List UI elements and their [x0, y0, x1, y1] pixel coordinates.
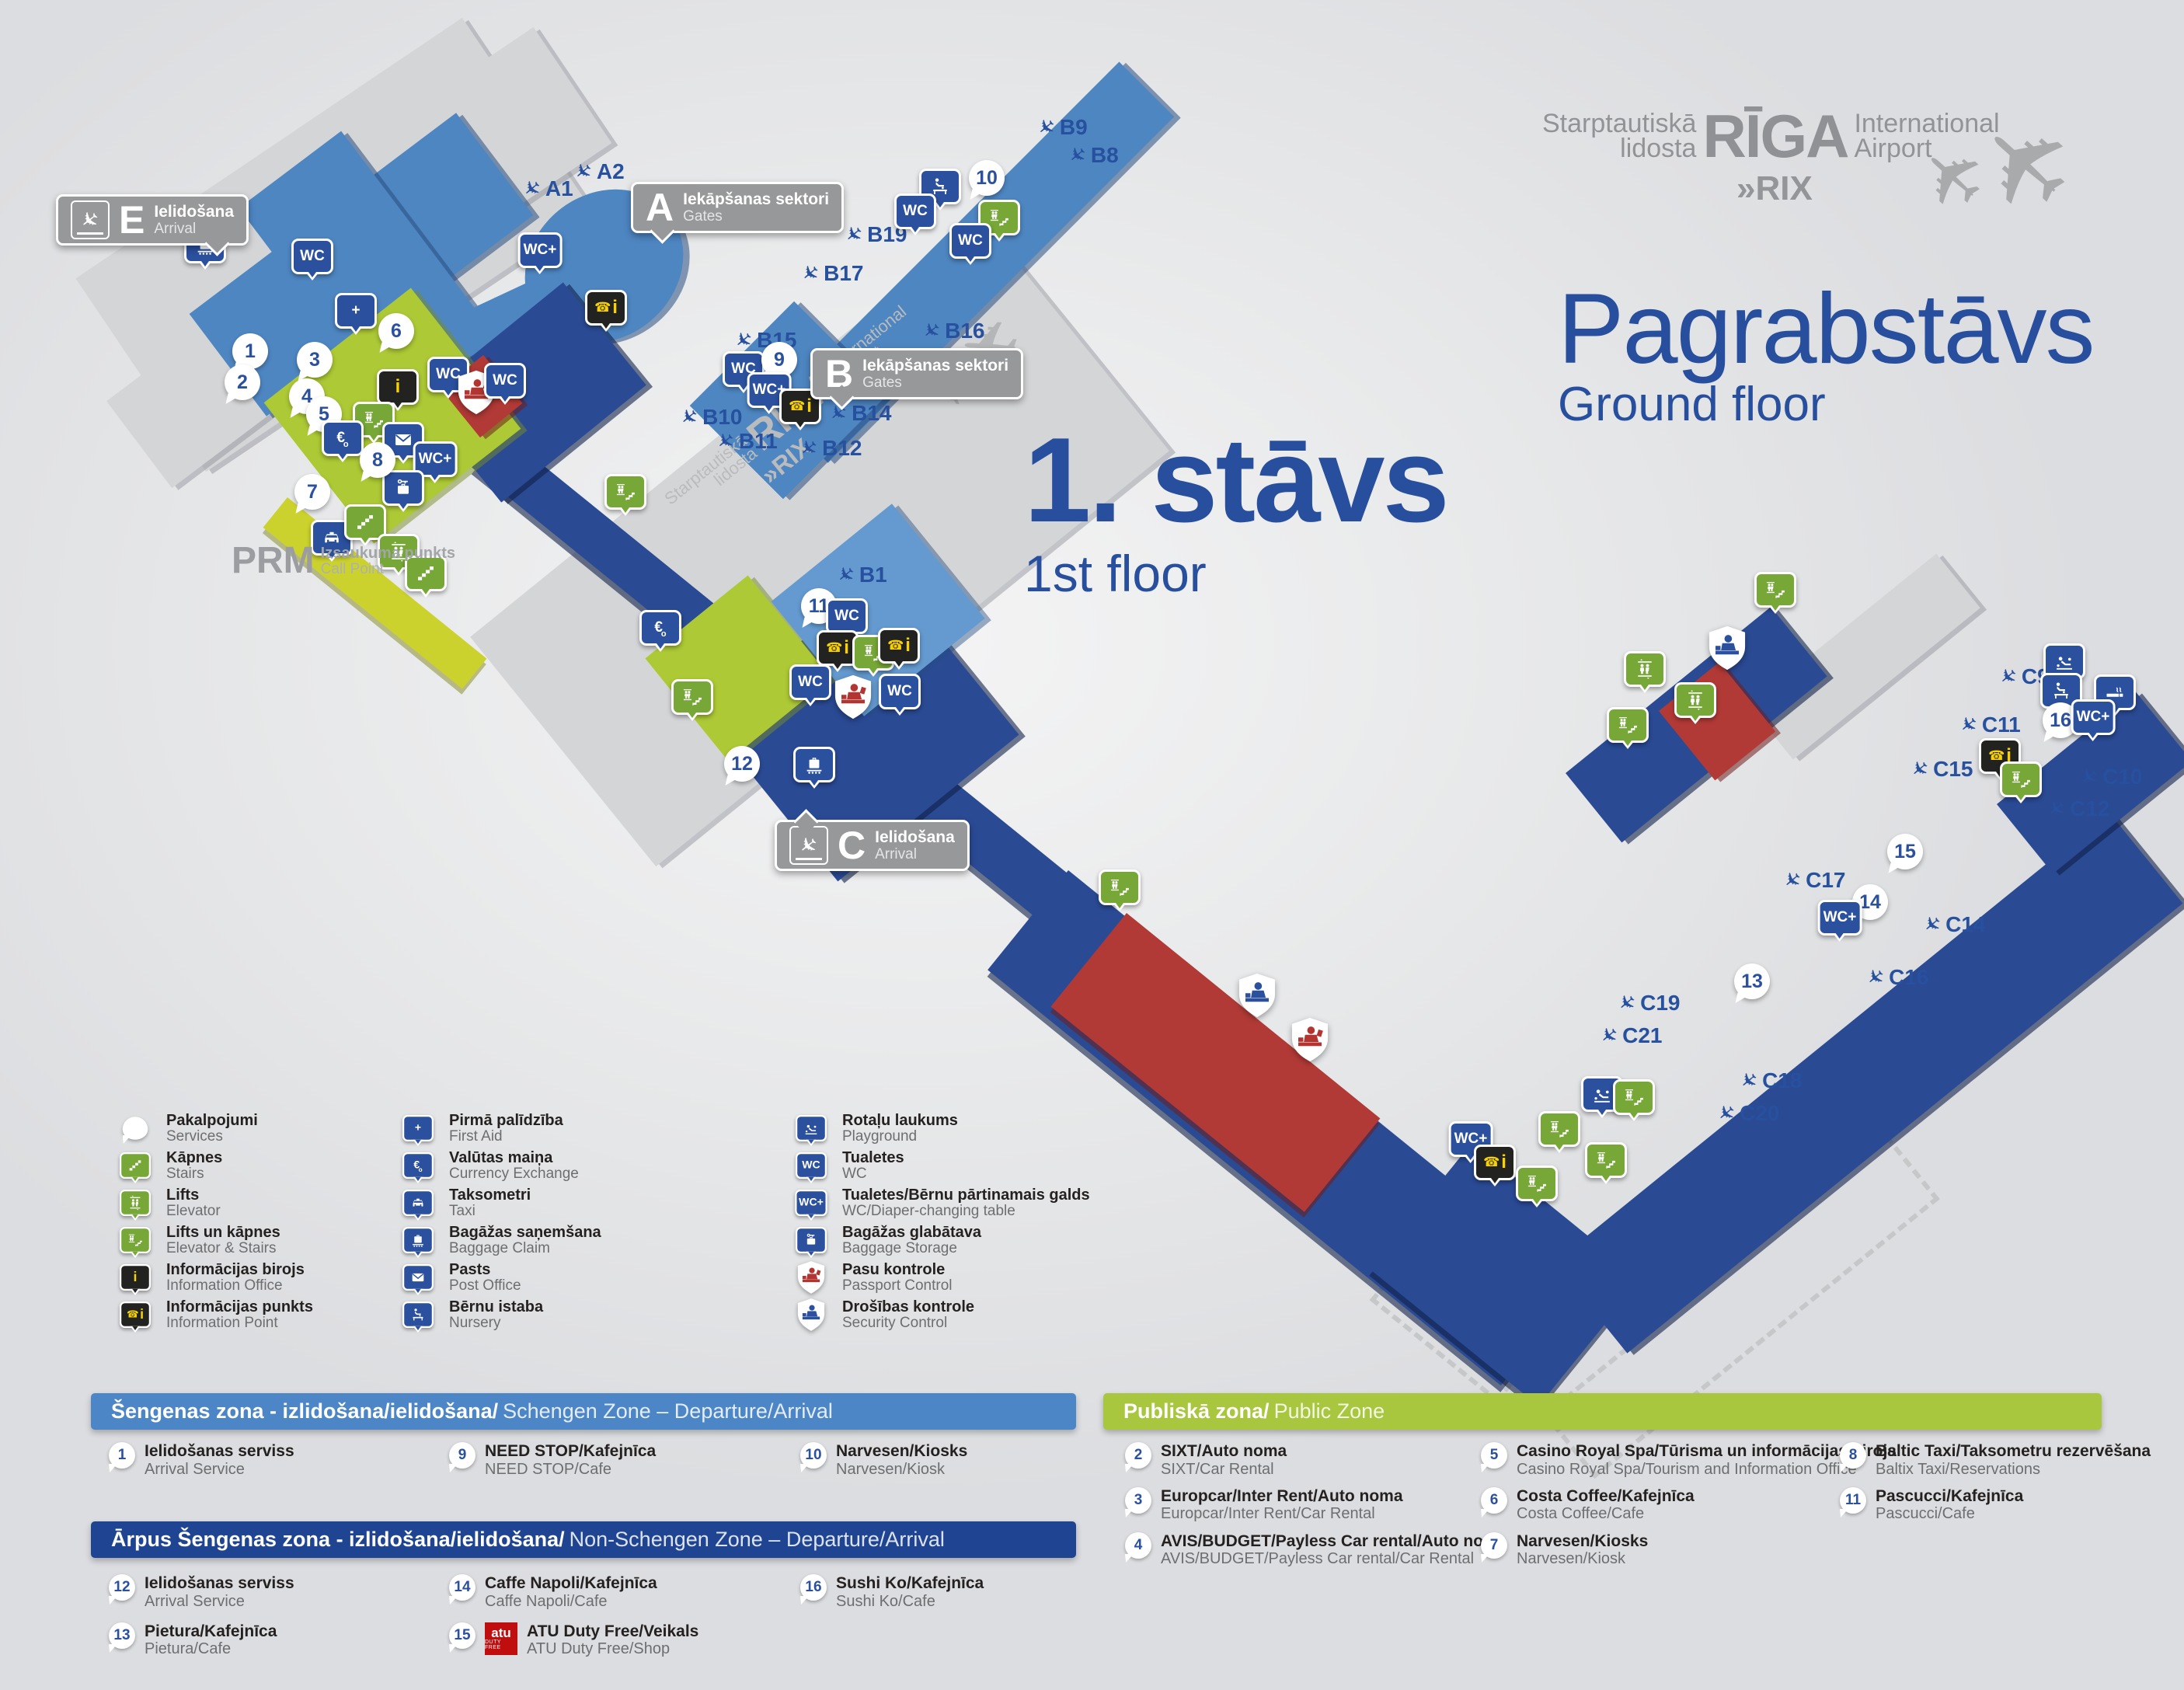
info-point-icon: ☎i — [1474, 1145, 1516, 1180]
plane-icon: ✈ — [1955, 710, 1984, 740]
plane-icon: ✈ — [796, 259, 825, 288]
plane-icon: ✈ — [1918, 910, 1947, 939]
gate-b17: ✈B17 — [803, 261, 864, 286]
security-icon — [1705, 625, 1749, 671]
info-point-icon: ☎i — [585, 290, 627, 326]
passport-icon — [795, 1260, 827, 1295]
logo-planes-icon: ✈ ✈ — [1919, 101, 2071, 232]
post-icon — [402, 1264, 434, 1291]
public-items-col-1: 2SIXT/Auto nomaSIXT/Car Rental3Europcar/… — [1125, 1442, 1507, 1568]
plane-icon: ✈ — [675, 402, 704, 432]
zone-item-13: 13Pietura/KafejnīcaPietura/Cafe — [109, 1622, 294, 1658]
legend-item: WC+Tualetes/Bērnu pārtinamais galdsWC/Di… — [791, 1184, 1090, 1221]
sector-label-a: A Iekāpšanas sektoriGates — [631, 182, 844, 233]
zone-item-16: 16Sushi Ko/KafejnīcaSushi Ko/Cafe — [800, 1574, 984, 1610]
zone-item-10: 10Narvesen/KiosksNarvesen/Kiosk — [800, 1442, 967, 1478]
info-point-icon: ☎i — [120, 1301, 151, 1328]
elev-stairs-icon — [120, 1227, 151, 1253]
playground-icon — [796, 1115, 827, 1141]
public-items-col-3: 8Baltic Taxi/Taksometru rezervēšanaBalti… — [1840, 1442, 2151, 1523]
plane-icon: ✈ — [1862, 963, 1890, 992]
page-title: Pagrabstāvs Ground floor — [1558, 280, 2094, 429]
info-office-icon: i — [377, 369, 419, 405]
arrival-plane-icon: ✈ — [789, 826, 828, 865]
passport-icon — [1288, 1016, 1332, 1063]
non-schengen-items-col-1: 12Ielidošanas servissArrival Service13Pi… — [109, 1574, 294, 1658]
legend-item: €oValūtas maiņaCurrency Exchange — [398, 1147, 601, 1184]
currency-icon: €o — [322, 420, 364, 456]
gate-c21: ✈C21 — [1601, 1023, 1663, 1048]
zone-item-12: 12Ielidošanas servissArrival Service — [109, 1574, 294, 1610]
atu-duty-free-logo: atuDUTY FREE — [485, 1622, 517, 1655]
marker-num-15: 15 — [1887, 834, 1923, 869]
zone-item-1: 1Ielidošanas servissArrival Service — [109, 1442, 294, 1478]
elev-stairs-icon — [1613, 1079, 1655, 1115]
marker-num-3: 3 — [297, 342, 333, 378]
elevator-icon — [1624, 651, 1666, 687]
elev-stairs-icon — [1585, 1142, 1627, 1178]
marker-num-7: 7 — [294, 474, 330, 510]
elevator-icon — [1674, 682, 1716, 718]
gate-c20: ✈C20 — [1719, 1101, 1780, 1126]
legend-item: Bērnu istabaNursery — [398, 1296, 601, 1333]
legend-item: ☎iInformācijas punktsInformation Point — [115, 1296, 313, 1333]
gate-b8: ✈B8 — [1069, 143, 1118, 168]
baggage-icon — [793, 747, 835, 782]
plane-icon: ✈ — [1712, 1099, 1741, 1128]
prm-call-point-label: PRM Izsaukuma punktsCall Point — [232, 542, 455, 580]
schengen-items-col-2: 9NEED STOP/KafejnīcaNEED STOP/Cafe — [449, 1442, 656, 1478]
plane-icon: ✈ — [1735, 1066, 1764, 1096]
gate-c10: ✈C10 — [2081, 765, 2143, 789]
wc-icon: WC — [291, 239, 333, 274]
gate-c14: ✈C14 — [1924, 912, 1986, 937]
zone-item-4: 4AVIS/BUDGET/Payless Car rental/Auto nom… — [1125, 1532, 1507, 1568]
elev-stairs-icon — [671, 679, 713, 715]
legend-column-1: PakalpojumiServicesKāpnesStairsLiftsElev… — [115, 1110, 313, 1333]
elev-stairs-icon — [1516, 1166, 1558, 1201]
wcplus-icon: WC+ — [795, 1190, 827, 1216]
marker-num-13: 13 — [1734, 963, 1770, 999]
gate-c11: ✈C11 — [1960, 713, 2020, 737]
zone-item-7: 7Narvesen/KiosksNarvesen/Kiosk — [1481, 1532, 1897, 1568]
wc-icon: WC — [789, 664, 831, 700]
plane-icon: ✈ — [1994, 662, 2023, 692]
plane-icon: ✈ — [1906, 754, 1935, 784]
elevator-icon — [120, 1190, 151, 1216]
gate-b12: ✈B12 — [801, 436, 862, 461]
taxi-icon — [402, 1190, 434, 1216]
zone-item-5: 5Casino Royal Spa/Tūrisma un informācija… — [1481, 1442, 1897, 1478]
gate-c12: ✈C12 — [2049, 796, 2110, 821]
legend-item: iInformācijas birojsInformation Office — [115, 1259, 313, 1296]
wc-icon: WC — [894, 193, 936, 229]
gate-b9: ✈B9 — [1038, 115, 1087, 140]
non-schengen-zone-bar: Ārpus Šengenas zona - izlidošana/ielidoš… — [91, 1521, 1076, 1558]
legend-item: LiftsElevator — [115, 1184, 313, 1221]
wcplus-icon: WC+ — [1818, 900, 1862, 936]
gate-c16: ✈C16 — [1868, 965, 1929, 990]
schengen-items-col-1: 1Ielidošanas servissArrival Service — [109, 1442, 294, 1478]
sector-label-e: ✈ E IelidošanaArrival — [56, 194, 249, 246]
firstaid-icon: + — [335, 293, 377, 329]
currency-icon: €o — [402, 1152, 434, 1179]
airport-ground-floor-map: Starptautiskālidosta RĪGA InternationalA… — [0, 0, 2184, 1690]
legend-item: PastsPost Office — [398, 1259, 601, 1296]
legend-item: Lifts un kāpnesElevator & Stairs — [115, 1221, 313, 1259]
plane-icon: ✈ — [1778, 866, 1807, 895]
info-point-icon: ☎i — [878, 628, 920, 664]
elev-stairs-icon — [1754, 572, 1796, 608]
non-schengen-items-col-2: 14Caffe Napoli/KafejnīcaCaffe Napoli/Caf… — [449, 1574, 698, 1658]
public-items-col-2: 5Casino Royal Spa/Tūrisma un informācija… — [1481, 1442, 1897, 1568]
legend-column-3: Rotaļu laukumsPlaygroundWCTualetesWCWC+T… — [791, 1110, 1090, 1333]
marker-num-2: 2 — [225, 364, 260, 400]
wc-icon: WC — [949, 223, 991, 259]
zone-item-14: 14Caffe Napoli/KafejnīcaCaffe Napoli/Caf… — [449, 1574, 698, 1610]
legend-item: KāpnesStairs — [115, 1147, 313, 1184]
wcplus-icon: WC+ — [2071, 699, 2116, 735]
plane-icon: ✈ — [1595, 1021, 1624, 1051]
zone-item-2: 2SIXT/Auto nomaSIXT/Car Rental — [1125, 1442, 1507, 1478]
legend-item: WCTualetesWC — [791, 1147, 1090, 1184]
elev-stairs-icon — [2000, 761, 2042, 797]
gate-c17: ✈C17 — [1785, 868, 1846, 893]
legend-item: Bagāžas saņemšanaBaggage Claim — [398, 1221, 601, 1259]
legend-item: Pasu kontrolePassport Control — [791, 1259, 1090, 1296]
zone-item-15: 15atuDUTY FREEATU Duty Free/VeikalsATU D… — [449, 1622, 698, 1658]
wc-icon: WC — [826, 598, 868, 634]
gate-a1: ✈A1 — [524, 176, 573, 201]
zone-item-8: 8Baltic Taxi/Taksometru rezervēšanaBalti… — [1840, 1442, 2151, 1478]
marker-num-12: 12 — [724, 746, 760, 782]
plane-icon: ✈ — [1613, 988, 1642, 1018]
schengen-items-col-3: 10Narvesen/KiosksNarvesen/Kiosk — [800, 1442, 967, 1478]
legend-item: Rotaļu laukumsPlayground — [791, 1110, 1090, 1147]
arrival-plane-icon: ✈ — [71, 200, 110, 239]
sector-label-c: ✈ C IelidošanaArrival — [775, 820, 970, 871]
elev-stairs-icon — [604, 474, 646, 510]
stairs-icon — [120, 1152, 151, 1179]
non-schengen-items-col-3: 16Sushi Ko/KafejnīcaSushi Ko/Cafe — [800, 1574, 984, 1610]
firstaid-icon: + — [402, 1115, 434, 1141]
elev-stairs-icon — [1538, 1111, 1580, 1147]
legend-item: TaksometriTaxi — [398, 1184, 601, 1221]
legend-column-2: +Pirmā palīdzībaFirst Aid€oValūtas maiņa… — [398, 1110, 601, 1333]
wcplus-icon: WC+ — [518, 232, 563, 268]
gate-c18: ✈C18 — [1741, 1068, 1803, 1093]
zone-item-3: 3Europcar/Inter Rent/Auto nomaEuropcar/I… — [1125, 1487, 1507, 1523]
wc-icon: WC — [484, 363, 526, 399]
legend-item: PakalpojumiServices — [115, 1110, 313, 1147]
zone-item-11: 11Pascucci/KafejnīcaPascucci/Cafe — [1840, 1487, 2151, 1523]
marker-num-10: 10 — [969, 160, 1005, 196]
legend-item: Drošības kontroleSecurity Control — [791, 1296, 1090, 1333]
public-zone-bar: Publiskā zona/Public Zone — [1103, 1393, 2102, 1430]
elev-stairs-icon — [1607, 707, 1649, 743]
marker-num-6: 6 — [378, 313, 414, 349]
gate-b16: ✈B16 — [924, 319, 985, 343]
security-icon — [1235, 972, 1279, 1019]
zone-item-6: 6Costa Coffee/KafejnīcaCosta Coffee/Cafe — [1481, 1487, 1897, 1523]
wc-icon: WC — [796, 1152, 827, 1179]
storage-icon — [796, 1227, 827, 1253]
gate-c19: ✈C19 — [1619, 991, 1681, 1016]
legend-item: +Pirmā palīdzībaFirst Aid — [398, 1110, 601, 1147]
gate-c15: ✈C15 — [1912, 757, 1973, 782]
info-office-icon: i — [120, 1264, 151, 1291]
zone-item-9: 9NEED STOP/KafejnīcaNEED STOP/Cafe — [449, 1442, 656, 1478]
gate-b11: ✈B11 — [717, 429, 777, 454]
plane-icon: ✈ — [1033, 113, 1061, 142]
gate-a2: ✈A2 — [575, 159, 624, 184]
security-icon — [795, 1298, 827, 1332]
floor-title: 1. stāvs 1st floor — [1024, 420, 1447, 599]
currency-icon: €o — [639, 610, 681, 646]
passport-icon — [831, 674, 875, 720]
wc-icon: WC — [879, 674, 921, 709]
elev-stairs-icon — [1099, 869, 1141, 905]
services-icon — [123, 1117, 148, 1140]
schengen-zone-bar: Šengenas zona - izlidošana/ielidošana/Sc… — [91, 1393, 1076, 1430]
baggage-icon — [402, 1227, 434, 1253]
gate-b1: ✈B1 — [838, 563, 886, 587]
plane-icon: ✈ — [840, 220, 869, 249]
marker-num-8: 8 — [360, 442, 395, 478]
nursery-icon — [402, 1301, 434, 1328]
gate-b10: ✈B10 — [681, 405, 743, 430]
sector-label-b: B Iekāpšanas sektoriGates — [810, 348, 1023, 399]
legend-item: Bagāžas glabātavaBaggage Storage — [791, 1221, 1090, 1259]
